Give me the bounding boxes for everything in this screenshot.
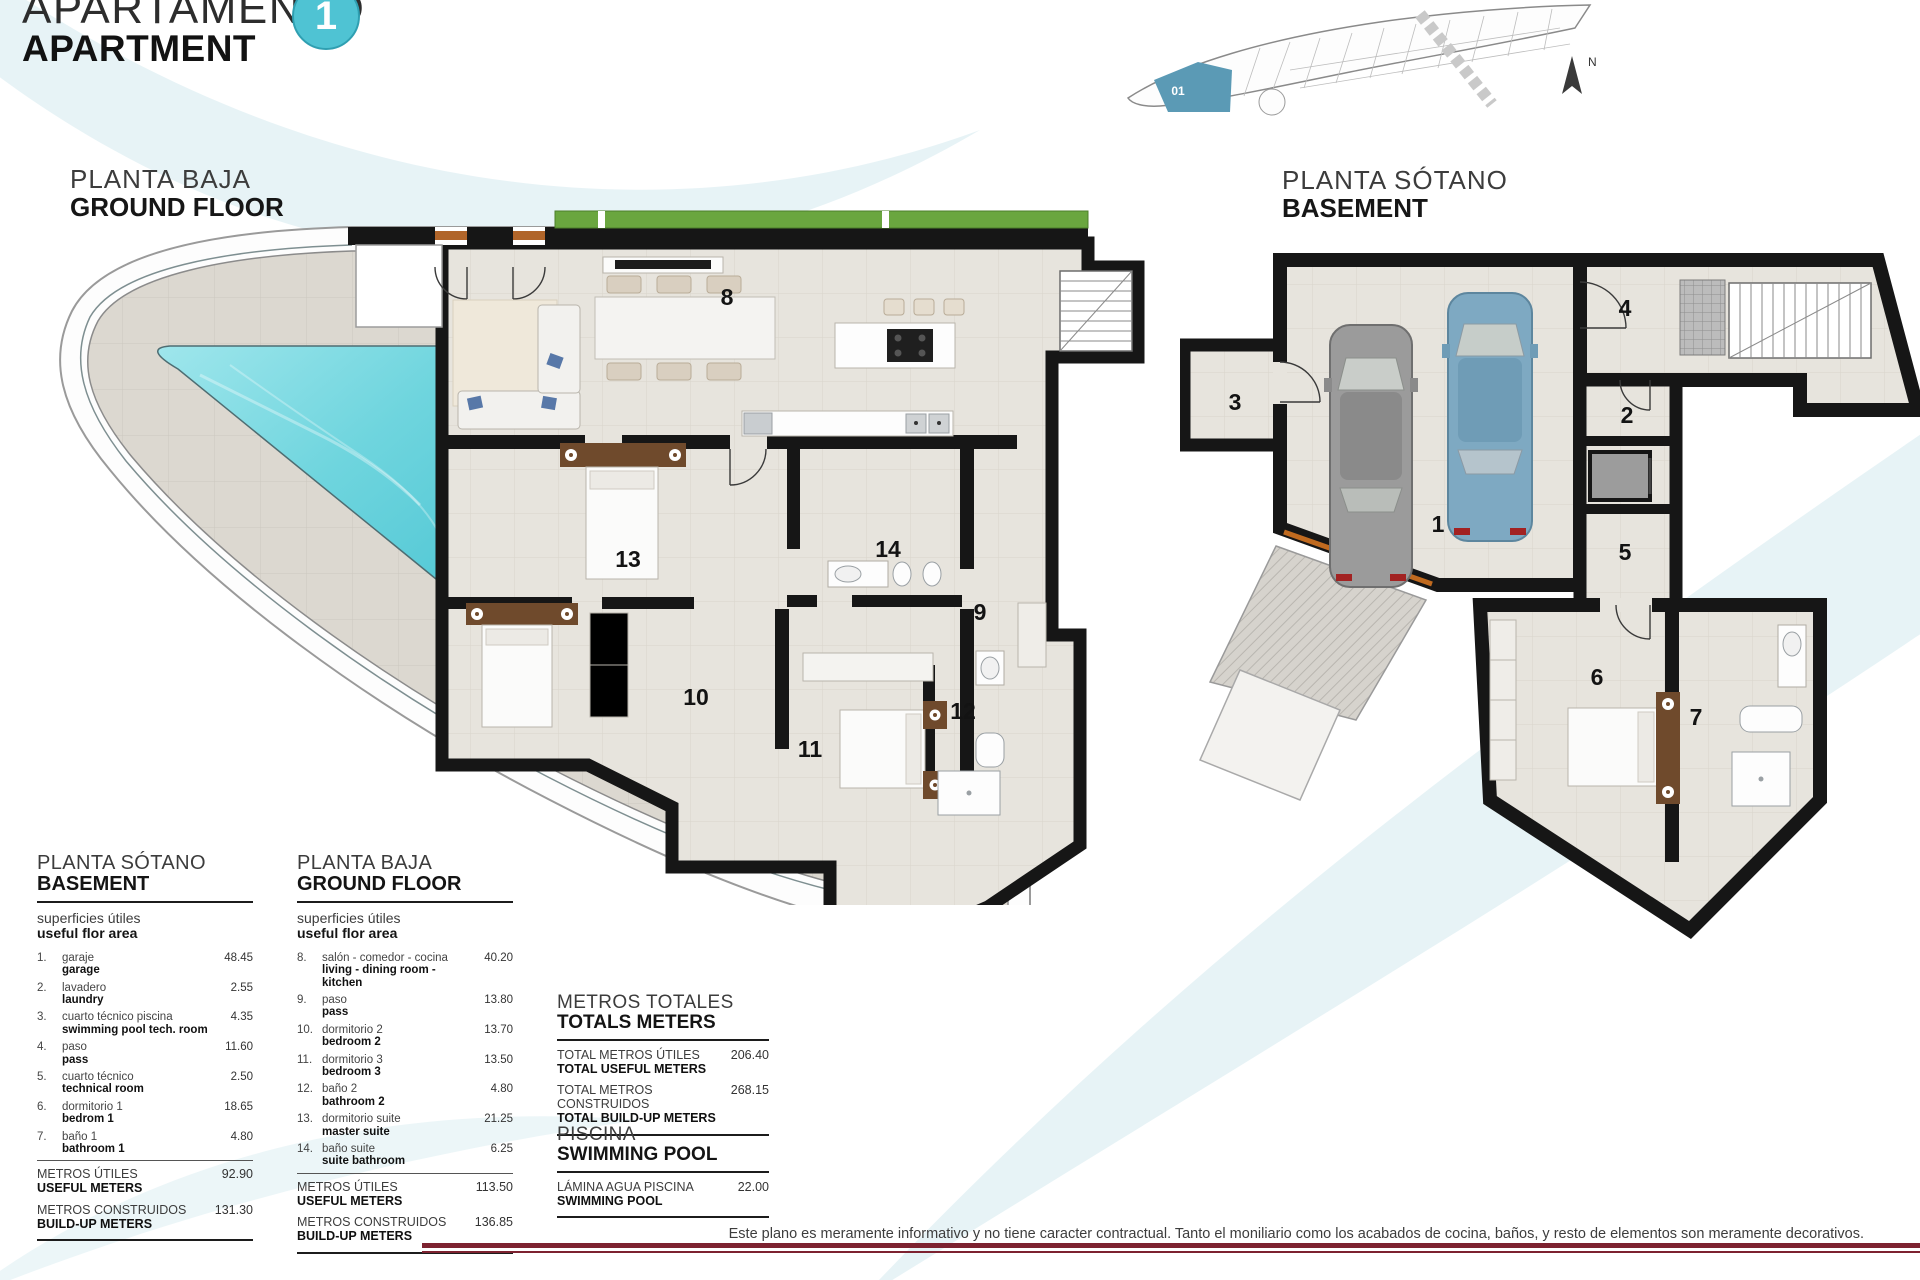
legend-item: 3. cuarto técnico piscina swimming pool …: [37, 1011, 253, 1036]
total-es: METROS ÚTILES: [297, 1181, 467, 1195]
legend-basement-title-es: PLANTA SÓTANO: [37, 853, 253, 874]
total-en: USEFUL METERS: [297, 1195, 467, 1209]
pool-value: 22.00: [738, 1181, 769, 1195]
item-es: paso: [322, 994, 469, 1006]
legend-item: 8. salón - comedor - cocina living - din…: [297, 952, 513, 989]
disclaimer-text: Este plano es meramente informativo y no…: [729, 1226, 1864, 1242]
highlighted-unit-label: 01: [1171, 84, 1185, 98]
door-opening: [1273, 362, 1287, 404]
total-en: USEFUL METERS: [37, 1182, 207, 1196]
item-en: living - dining room - kitchen: [322, 964, 469, 989]
unit-number: 1: [315, 0, 337, 39]
item-number: 4.: [37, 1041, 62, 1066]
room-label-6: 6: [1591, 664, 1604, 690]
site-notch: [1259, 89, 1285, 115]
total-en: TOTAL USEFUL METERS: [557, 1063, 723, 1077]
legend-ground-title-es: PLANTA BAJA: [297, 853, 513, 874]
divider: [37, 1160, 253, 1161]
totals-title-en: TOTALS METERS: [557, 1013, 769, 1033]
appliance: [744, 413, 772, 434]
bench: [803, 653, 933, 681]
divider: [37, 901, 253, 903]
legend-item: 12. baño 2 bathroom 2 4.80: [297, 1083, 513, 1108]
wood-threshold: [435, 231, 467, 240]
legend-basement-title-en: BASEMENT: [37, 874, 253, 895]
sofa-chaise: [538, 305, 580, 393]
total-value: 92.90: [222, 1168, 253, 1182]
ground-floor-heading-en: GROUND FLOOR: [70, 193, 284, 221]
door-opening: [1600, 598, 1652, 612]
item-number: 5.: [37, 1071, 62, 1096]
item-es: dormitorio 3: [322, 1054, 469, 1066]
wood-threshold: [513, 231, 545, 240]
item-es: paso: [62, 1041, 209, 1053]
room-label-4: 4: [1619, 295, 1632, 321]
pillows: [906, 714, 921, 784]
total-es: TOTAL METROS ÚTILES: [557, 1049, 723, 1063]
item-es: salón - comedor - cocina: [322, 952, 469, 964]
pillows: [486, 629, 548, 645]
item-value: 4.80: [231, 1131, 253, 1143]
divider: [557, 1171, 769, 1173]
interior-wall: [1578, 504, 1678, 514]
total-value: 268.15: [731, 1084, 769, 1098]
legend-item: 11. dormitorio 3 bedroom 3 13.50: [297, 1054, 513, 1079]
stool: [914, 299, 934, 315]
total-es: METROS CONSTRUIDOS: [37, 1204, 207, 1218]
legend-basement: PLANTA SÓTANO BASEMENT superficies útile…: [37, 853, 253, 1249]
chair: [657, 363, 691, 380]
item-value: 11.60: [225, 1041, 253, 1053]
legend-total: METROS CONSTRUIDOS BUILD-UP METERS 131.3…: [37, 1204, 253, 1232]
room-label-8: 8: [721, 284, 734, 310]
chair: [707, 363, 741, 380]
total-es: METROS CONSTRUIDOS: [297, 1216, 467, 1230]
item-es: baño 1: [62, 1131, 209, 1143]
item-value: 18.65: [224, 1101, 253, 1113]
legend-subtitle-es: superficies útiles: [297, 911, 513, 926]
item-en: master suite: [322, 1126, 469, 1138]
room-label-10: 10: [683, 684, 709, 710]
bidet: [923, 562, 941, 586]
legend-item: 14. baño suite suite bathroom 6.25: [297, 1143, 513, 1168]
highlighted-unit-shape: [1154, 62, 1232, 112]
item-en: bedrom 1: [62, 1113, 209, 1125]
bathtub: [1740, 706, 1802, 732]
legend-item: 10. dormitorio 2 bedroom 2 13.70: [297, 1024, 513, 1049]
ground-floor-plan: 8 9 10 11 12 13 14: [30, 205, 1160, 905]
legend-item: 2. lavadero laundry 2.55: [37, 982, 253, 1007]
item-value: 13.80: [484, 994, 513, 1006]
item-en: bedroom 3: [322, 1066, 469, 1078]
item-en: pass: [62, 1054, 209, 1066]
total-value: 136.85: [475, 1216, 513, 1230]
room-label-13: 13: [615, 546, 641, 572]
headboard: [560, 443, 686, 467]
sink: [981, 657, 999, 679]
item-number: 1.: [37, 952, 62, 977]
item-value: 48.45: [224, 952, 253, 964]
void-hatch: [1680, 280, 1725, 355]
sink: [835, 566, 861, 582]
room-label-12: 12: [950, 698, 976, 724]
entry-porch: [356, 245, 442, 327]
total-value: 206.40: [731, 1049, 769, 1063]
planter-divider: [598, 211, 605, 228]
room-label-5: 5: [1619, 539, 1632, 565]
pillows: [590, 471, 654, 489]
pillow: [541, 396, 557, 410]
legend-item: 6. dormitorio 1 bedrom 1 18.65: [37, 1101, 253, 1126]
total-es: METROS ÚTILES: [37, 1168, 207, 1182]
item-number: 12.: [297, 1083, 322, 1108]
footer-rule-thin: [422, 1251, 1920, 1253]
basement-heading-es: PLANTA SÓTANO: [1282, 166, 1508, 194]
cooktop: [887, 329, 933, 362]
item-en: swimming pool tech. room: [62, 1024, 209, 1036]
divider: [37, 1239, 253, 1241]
item-number: 11.: [297, 1054, 322, 1079]
bathtub: [976, 733, 1004, 767]
stool: [884, 299, 904, 315]
bedroom2-furniture: [466, 603, 628, 727]
item-number: 9.: [297, 994, 322, 1019]
item-en: bedroom 2: [322, 1036, 469, 1048]
pool-es: LÁMINA AGUA PISCINA: [557, 1181, 723, 1195]
total-value: 131.30: [215, 1204, 253, 1218]
totals-row: TOTAL METROS CONSTRUIDOS TOTAL BUILD-UP …: [557, 1084, 769, 1125]
item-es: garaje: [62, 952, 209, 964]
room-label-9: 9: [974, 599, 987, 625]
pool-section: PISCINA SWIMMING POOL LÁMINA AGUA PISCIN…: [557, 1125, 769, 1226]
room-label-7: 7: [1690, 704, 1703, 730]
legend-item: 7. baño 1 bathroom 1 4.80: [37, 1131, 253, 1156]
interior-wall: [1578, 436, 1678, 446]
room-label-11: 11: [798, 736, 823, 762]
legend-ground: PLANTA BAJA GROUND FLOOR superficies úti…: [297, 853, 513, 1262]
garage-outline: [1280, 260, 1580, 585]
legend-item: 9. paso pass 13.80: [297, 994, 513, 1019]
item-en: bathroom 2: [322, 1096, 469, 1108]
legend-ground-title-en: GROUND FLOOR: [297, 874, 513, 895]
item-en: suite bathroom: [322, 1155, 469, 1167]
total-en: BUILD-UP METERS: [297, 1230, 467, 1244]
room-label-3: 3: [1229, 389, 1242, 415]
legend-total: METROS ÚTILES USEFUL METERS 113.50: [297, 1181, 513, 1209]
item-value: 4.80: [491, 1083, 513, 1095]
pool-row: LÁMINA AGUA PISCINA SWIMMING POOL 22.00: [557, 1181, 769, 1209]
item-value: 2.50: [231, 1071, 253, 1083]
legend-subtitle-en: useful flor area: [297, 926, 513, 941]
ground-floor-heading-es: PLANTA BAJA: [70, 165, 284, 193]
item-es: cuarto técnico piscina: [62, 1011, 209, 1023]
item-value: 4.35: [231, 1011, 253, 1023]
toilet: [893, 562, 911, 586]
chair: [607, 276, 641, 293]
item-es: baño suite: [322, 1143, 469, 1155]
item-number: 13.: [297, 1113, 322, 1138]
totals-section: METROS TOTALES TOTALS METERS TOTAL METRO…: [557, 993, 769, 1144]
north-label: N: [1588, 55, 1597, 69]
pool-en: SWIMMING POOL: [557, 1195, 723, 1209]
total-value: 113.50: [476, 1181, 513, 1195]
legend-item: 4. paso pass 11.60: [37, 1041, 253, 1066]
stool: [944, 299, 964, 315]
item-value: 6.25: [491, 1143, 513, 1155]
legend-subtitle-es: superficies útiles: [37, 911, 253, 926]
north-arrow-icon: [1562, 56, 1582, 94]
legend-total: METROS ÚTILES USEFUL METERS 92.90: [37, 1168, 253, 1196]
room-label-2: 2: [1621, 402, 1634, 428]
item-en: pass: [322, 1006, 469, 1018]
item-es: baño 2: [322, 1083, 469, 1095]
divider: [557, 1039, 769, 1041]
legend-item: 5. cuarto técnico technical room 2.50: [37, 1071, 253, 1096]
item-value: 21.25: [484, 1113, 513, 1125]
item-en: garage: [62, 964, 209, 976]
staircase: [1060, 271, 1132, 351]
pool-title-en: SWIMMING POOL: [557, 1145, 769, 1165]
basement-staircase: [1729, 283, 1871, 358]
totals-title-es: METROS TOTALES: [557, 993, 769, 1013]
item-value: 13.70: [484, 1024, 513, 1036]
item-value: 40.20: [484, 952, 513, 964]
item-es: dormitorio 2: [322, 1024, 469, 1036]
item-es: cuarto técnico: [62, 1071, 209, 1083]
item-en: laundry: [62, 994, 209, 1006]
room-label-14: 14: [875, 536, 901, 562]
divider: [297, 901, 513, 903]
key-plan: 01 N: [1120, 0, 1600, 130]
total-es: TOTAL METROS CONSTRUIDOS: [557, 1084, 723, 1112]
item-number: 14.: [297, 1143, 322, 1168]
divider: [557, 1216, 769, 1218]
elevator-shaft: [1590, 452, 1650, 500]
item-value: 2.55: [231, 982, 253, 994]
item-number: 8.: [297, 952, 322, 989]
car-grey: [1324, 325, 1418, 587]
planter-divider: [882, 211, 889, 228]
dining-table: [595, 297, 775, 359]
basement-plan: 1 2 3 4 5 6 7: [1180, 240, 1920, 980]
ground-floor-heading: PLANTA BAJA GROUND FLOOR: [70, 165, 284, 221]
tv: [615, 260, 711, 269]
legend-item: 1. garaje garage 48.45: [37, 952, 253, 977]
basement-heading-en: BASEMENT: [1282, 194, 1508, 222]
sink: [1783, 632, 1801, 656]
legend-total: METROS CONSTRUIDOS BUILD-UP METERS 136.8…: [297, 1216, 513, 1244]
totals-row: TOTAL METROS ÚTILES TOTAL USEFUL METERS …: [557, 1049, 769, 1077]
page: APARTAMENTO APARTMENT 1 01 N PLANTA BAJA…: [0, 0, 1920, 1280]
item-en: bathroom 1: [62, 1143, 209, 1155]
legend-item: 13. dormitorio suite master suite 21.25: [297, 1113, 513, 1138]
room-label-1: 1: [1432, 511, 1445, 537]
divider: [297, 1173, 513, 1174]
item-number: 2.: [37, 982, 62, 1007]
item-en: technical room: [62, 1083, 209, 1095]
item-number: 10.: [297, 1024, 322, 1049]
chair: [657, 276, 691, 293]
legend-subtitle-en: useful flor area: [37, 926, 253, 941]
item-es: dormitorio suite: [322, 1113, 469, 1125]
basement-heading: PLANTA SÓTANO BASEMENT: [1282, 166, 1508, 222]
pillows: [1638, 712, 1654, 782]
item-number: 7.: [37, 1131, 62, 1156]
chair: [607, 363, 641, 380]
item-value: 13.50: [484, 1054, 513, 1066]
pool-title-es: PISCINA: [557, 1125, 769, 1145]
car-blue: [1442, 293, 1538, 541]
hall-closet: [1018, 603, 1046, 667]
item-es: lavadero: [62, 982, 209, 994]
item-number: 3.: [37, 1011, 62, 1036]
footer-rule-thick: [422, 1243, 1920, 1248]
item-es: dormitorio 1: [62, 1101, 209, 1113]
grass-planter: [555, 211, 1088, 228]
item-number: 6.: [37, 1101, 62, 1126]
total-en: BUILD-UP METERS: [37, 1218, 207, 1232]
